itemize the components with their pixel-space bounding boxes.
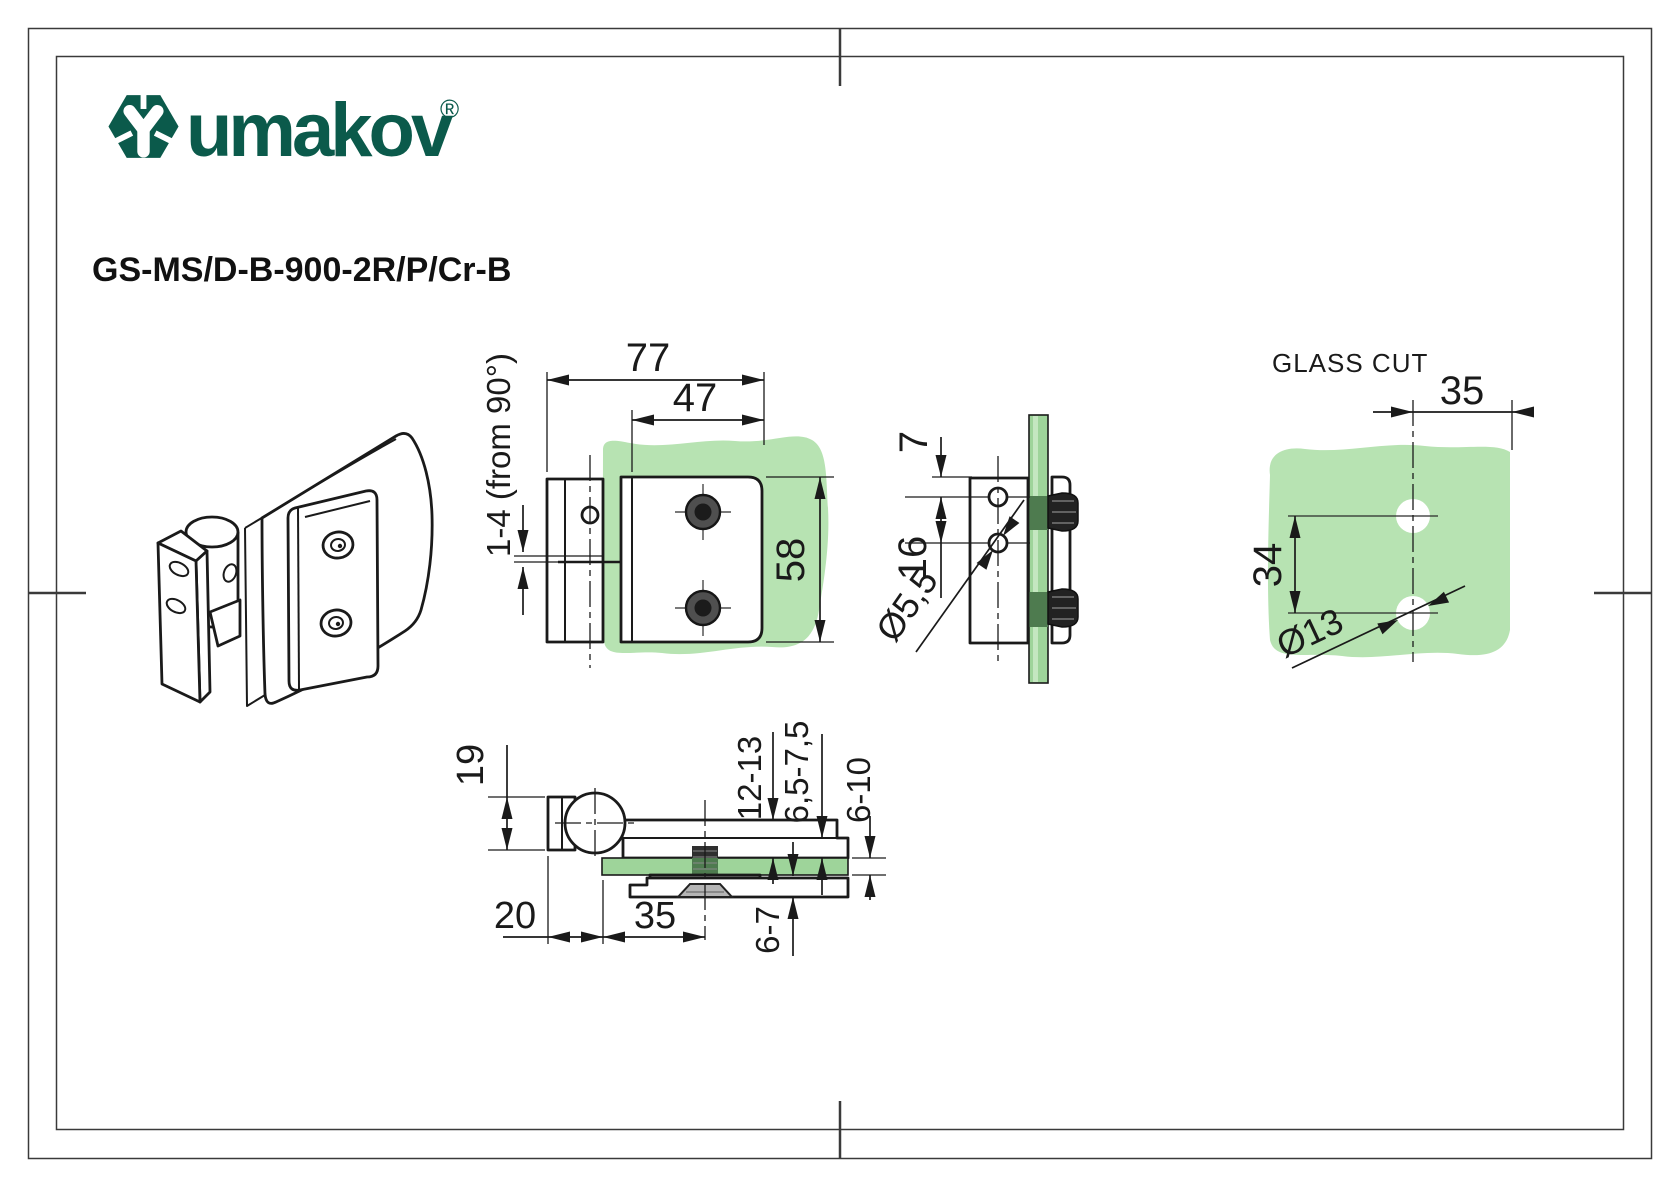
dim-47-label: 47 <box>673 376 718 420</box>
iso-clamp-plate <box>288 491 378 691</box>
side-screw-head-bottom <box>1048 589 1078 627</box>
side-screw-head-top <box>1048 493 1078 531</box>
dim-adjustment: 1-4 (from 90°) <box>480 353 523 615</box>
iso-wall-bracket <box>158 531 210 702</box>
dim-77-label: 77 <box>626 336 671 380</box>
isometric-view <box>158 433 432 706</box>
side-glass-strip <box>1029 415 1048 683</box>
dim-35-bottom-label: 35 <box>634 895 676 937</box>
glass-cut-title: GLASS CUT <box>1272 348 1428 378</box>
glass-cut-view: GLASS CUT 35 34 Ø13 <box>1246 348 1530 668</box>
front-wall-bracket <box>547 479 603 642</box>
technical-drawing-page: umakov ® GS-MS/D-B-900-2R/P/Cr-B <box>0 0 1680 1187</box>
brand-name: umakov <box>186 88 453 173</box>
dim-19: 19 <box>450 744 545 850</box>
registered-trademark: ® <box>440 94 459 124</box>
drawing-canvas: umakov ® GS-MS/D-B-900-2R/P/Cr-B <box>0 0 1680 1187</box>
dim-20-label: 20 <box>494 895 536 937</box>
umakov-logo: umakov ® <box>108 88 459 173</box>
product-code: GS-MS/D-B-900-2R/P/Cr-B <box>92 251 511 289</box>
dim-35-glass-label: 35 <box>1440 369 1485 413</box>
dim-34-label: 34 <box>1246 543 1290 588</box>
dim-6-10-label: 6-10 <box>840 757 877 823</box>
dim-35-glass: 35 <box>1373 369 1530 450</box>
dim-20: 20 <box>494 856 603 944</box>
side-glass-highlight <box>1033 416 1038 682</box>
front-view: 77 47 58 1-4 (from 90°) <box>480 336 834 668</box>
dim-35-bottom: 35 <box>603 895 705 937</box>
dim-adjustment-label: 1-4 (from 90°) <box>480 353 517 557</box>
side-screw-through-top <box>1029 496 1048 530</box>
side-view: 7 16 Ø5,5 <box>868 415 1078 683</box>
dim-58-label: 58 <box>769 538 813 583</box>
iso-clamp-plate-edge <box>298 507 299 689</box>
dim-7: 7 <box>892 431 972 477</box>
umakov-logo-icon <box>108 93 178 158</box>
dim-19-label: 19 <box>450 744 492 786</box>
dim-7-label: 7 <box>892 431 936 453</box>
bottom-glass-strip <box>602 858 848 875</box>
bottom-view: 19 20 35 12-13 6,5-7,5 <box>450 721 886 956</box>
dim-65-75-label: 6,5-7,5 <box>778 721 815 824</box>
dim-6-7-label: 6-7 <box>749 906 786 954</box>
dim-12-13-label: 12-13 <box>731 736 768 820</box>
side-screw-through-bottom <box>1029 592 1048 627</box>
